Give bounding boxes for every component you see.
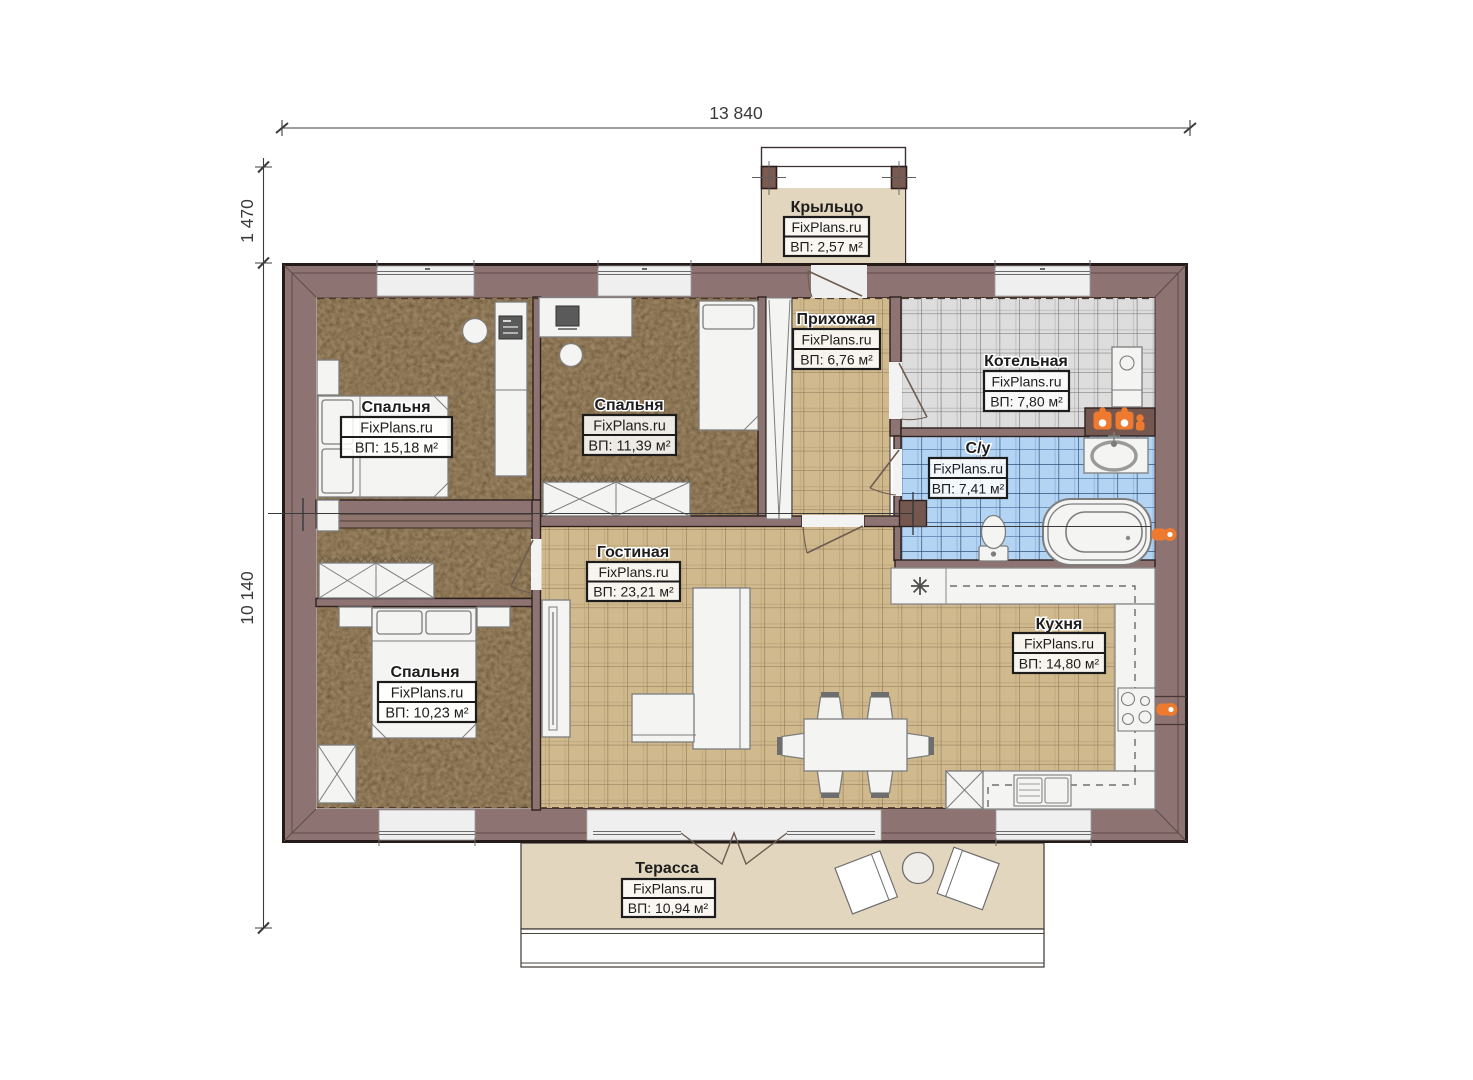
- svg-text:ВП: 14,80 м²: ВП: 14,80 м²: [1019, 656, 1100, 672]
- svg-text:Прихожая: Прихожая: [797, 311, 876, 328]
- svg-text:ВП: 10,23 м²: ВП: 10,23 м²: [385, 706, 468, 722]
- svg-text:Гостиная: Гостиная: [597, 544, 669, 561]
- svg-text:FixPlans.ru: FixPlans.ru: [598, 564, 668, 580]
- svg-text:FixPlans.ru: FixPlans.ru: [801, 332, 871, 348]
- svg-text:ВП: 2,57 м²: ВП: 2,57 м²: [790, 239, 863, 255]
- svg-text:Котельная: Котельная: [984, 353, 1068, 370]
- svg-text:С/у: С/у: [966, 440, 991, 457]
- svg-text:FixPlans.ru: FixPlans.ru: [991, 374, 1061, 390]
- svg-text:13 840: 13 840: [709, 103, 763, 123]
- svg-text:ВП: 15,18 м²: ВП: 15,18 м²: [355, 441, 438, 457]
- svg-text:Спальня: Спальня: [361, 399, 430, 416]
- svg-text:1 470: 1 470: [237, 199, 257, 243]
- svg-text:FixPlans.ru: FixPlans.ru: [1024, 636, 1094, 652]
- svg-text:FixPlans.ru: FixPlans.ru: [593, 419, 666, 435]
- svg-text:FixPlans.ru: FixPlans.ru: [360, 421, 433, 437]
- svg-text:FixPlans.ru: FixPlans.ru: [933, 461, 1003, 477]
- svg-text:Спальня: Спальня: [594, 397, 663, 414]
- svg-text:Кухня: Кухня: [1036, 616, 1083, 633]
- svg-text:Крыльцо: Крыльцо: [791, 199, 864, 216]
- svg-text:Спальня: Спальня: [390, 664, 459, 681]
- svg-text:ВП: 23,21 м²: ВП: 23,21 м²: [593, 584, 674, 600]
- svg-text:ВП: 11,39 м²: ВП: 11,39 м²: [588, 439, 670, 455]
- svg-text:Терасса: Терасса: [635, 860, 699, 877]
- svg-text:10 140: 10 140: [237, 571, 257, 625]
- svg-text:FixPlans.ru: FixPlans.ru: [633, 881, 703, 897]
- svg-text:ВП: 7,41 м²: ВП: 7,41 м²: [932, 481, 1005, 497]
- svg-text:FixPlans.ru: FixPlans.ru: [791, 219, 861, 235]
- svg-text:FixPlans.ru: FixPlans.ru: [391, 686, 464, 702]
- svg-text:ВП: 7,80 м²: ВП: 7,80 м²: [990, 394, 1063, 410]
- svg-text:ВП: 6,76 м²: ВП: 6,76 м²: [800, 352, 873, 368]
- svg-text:ВП: 10,94 м²: ВП: 10,94 м²: [628, 900, 709, 916]
